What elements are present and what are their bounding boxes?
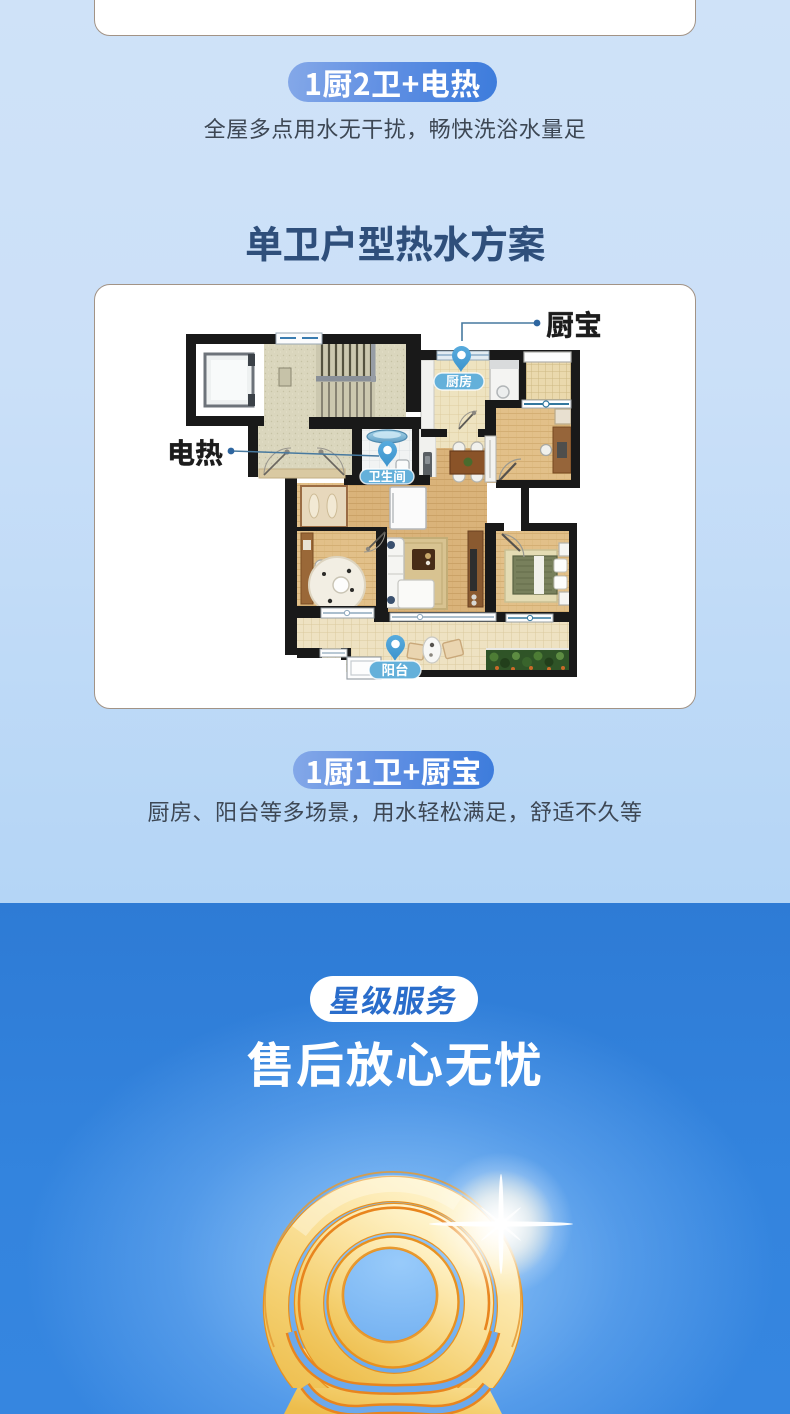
svg-text:电热: 电热 (167, 432, 223, 472)
svg-text:卫生间: 卫生间 (368, 466, 406, 485)
svg-text:厨房: 厨房 (446, 371, 472, 390)
svg-text:阳台: 阳台 (382, 659, 409, 679)
svg-text:厨宝: 厨宝 (546, 304, 602, 344)
